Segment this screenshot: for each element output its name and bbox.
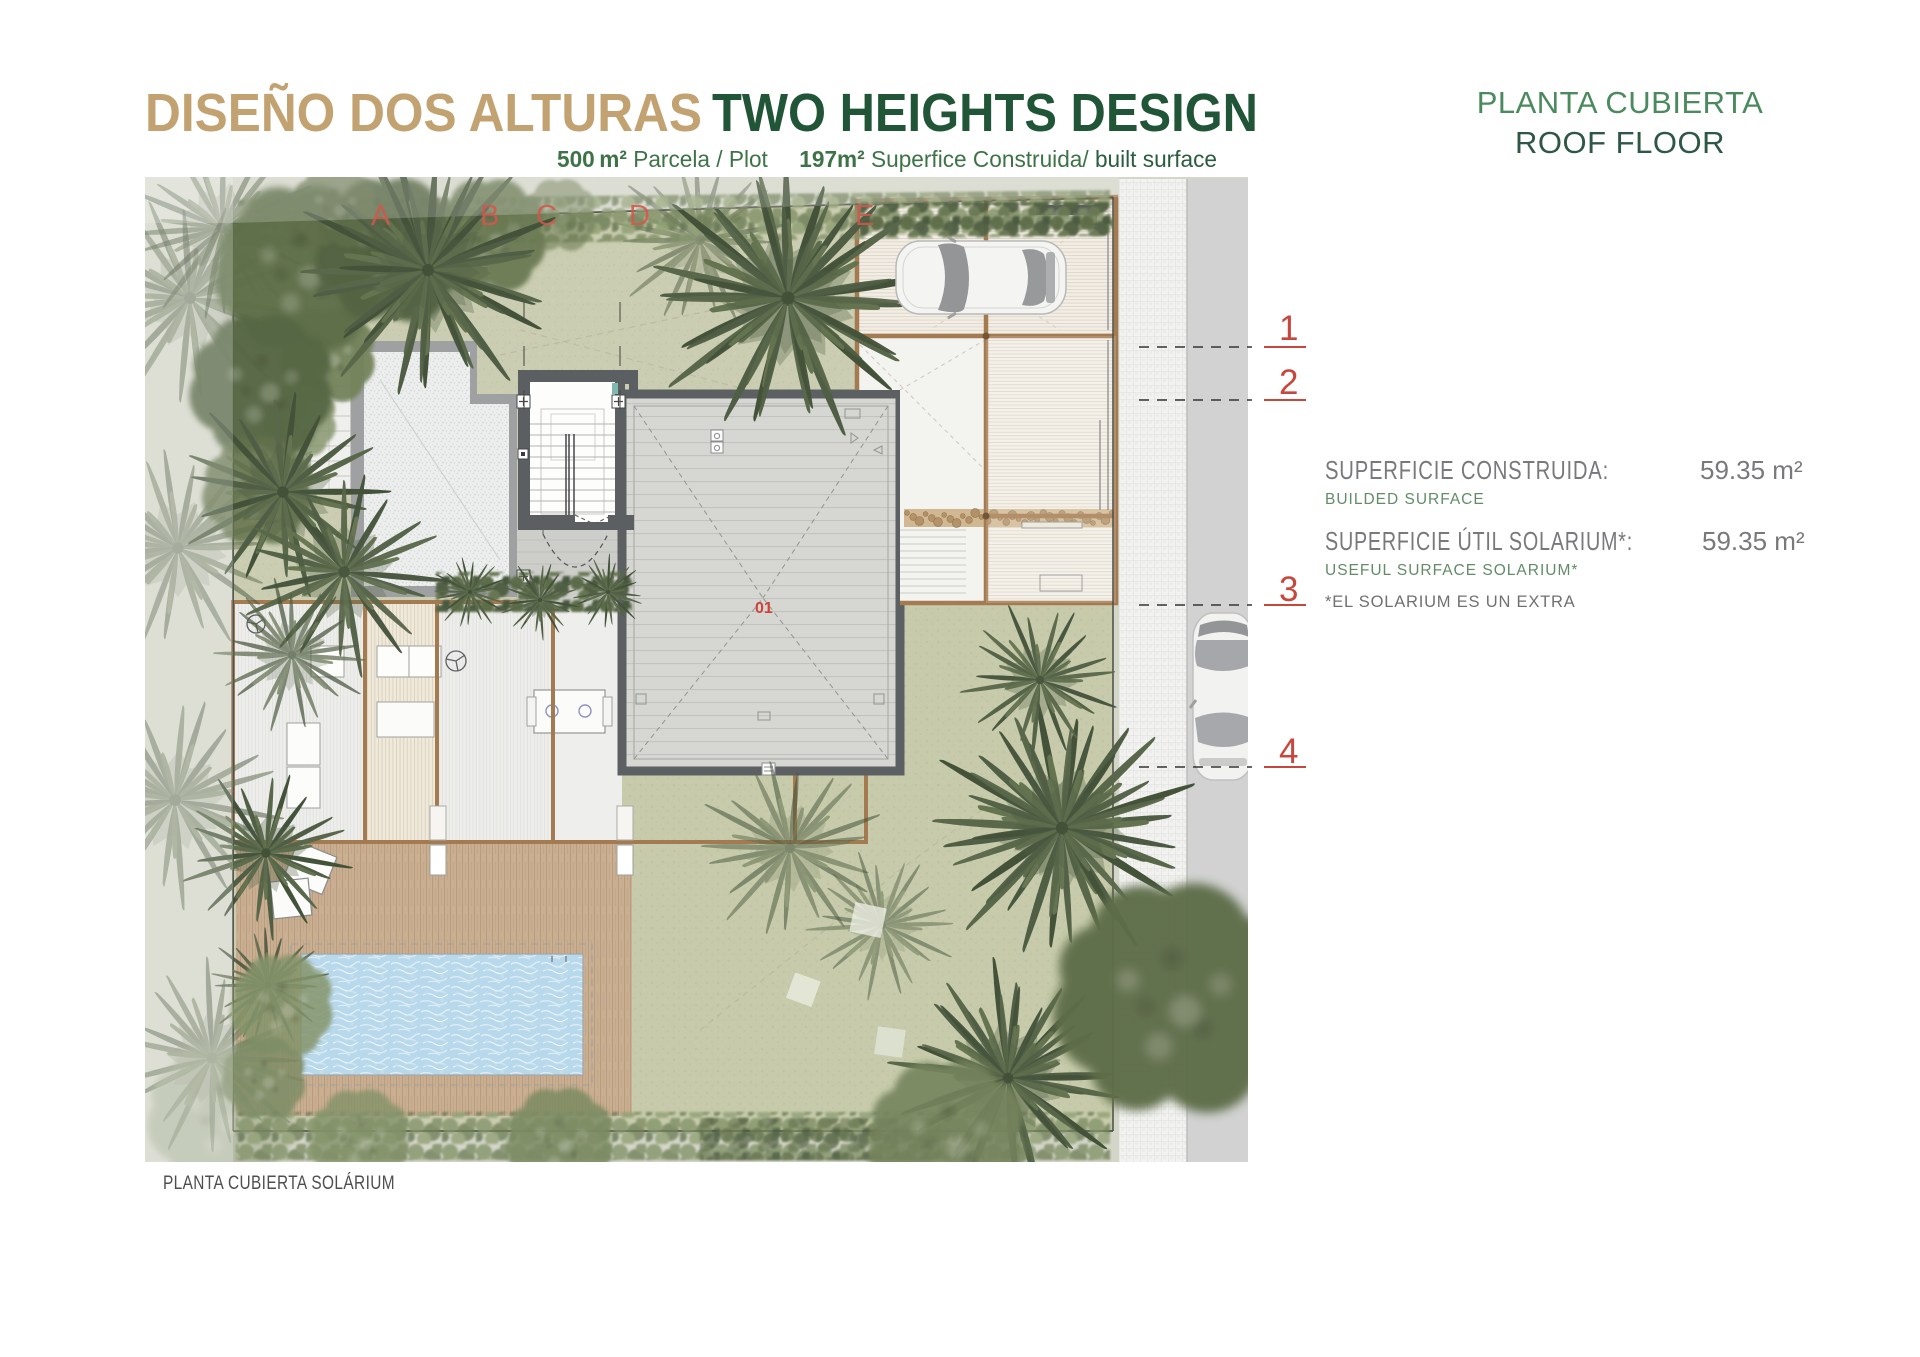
svg-text:500 m² Parcela / Plot 197m: 500 m² Parcela / Plot 197m² Superfice Co… <box>557 146 1217 172</box>
svg-text:D: D <box>629 200 650 232</box>
svg-text:59.35 m²: 59.35 m² <box>1702 526 1805 556</box>
svg-text:DISEÑO DOS ALTURAS: DISEÑO DOS ALTURAS <box>145 83 702 143</box>
svg-text:PLANTA CUBIERTA SOLÁRIUM: PLANTA CUBIERTA SOLÁRIUM <box>163 1171 395 1194</box>
svg-text:C: C <box>536 200 557 232</box>
svg-text:TWO HEIGHTS DESIGN: TWO HEIGHTS DESIGN <box>712 83 1258 143</box>
svg-text:*EL SOLARIUM ES UN EXTRA: *EL SOLARIUM ES UN EXTRA <box>1325 593 1576 611</box>
svg-text:4: 4 <box>1279 732 1298 771</box>
svg-text:A: A <box>371 200 391 232</box>
svg-text:SUPERFICIE ÚTIL SOLARIUM*:: SUPERFICIE ÚTIL SOLARIUM*: <box>1325 526 1633 556</box>
svg-text:3: 3 <box>1279 570 1298 609</box>
svg-text:ROOF FLOOR: ROOF FLOOR <box>1515 125 1725 160</box>
svg-text:PLANTA CUBIERTA: PLANTA CUBIERTA <box>1477 85 1764 120</box>
svg-text:2: 2 <box>1279 363 1298 402</box>
svg-text:BUILDED SURFACE: BUILDED SURFACE <box>1325 491 1485 508</box>
svg-text:E: E <box>855 200 874 232</box>
svg-text:B: B <box>480 200 499 232</box>
svg-text:USEFUL SURFACE SOLARIUM*: USEFUL SURFACE SOLARIUM* <box>1325 562 1578 579</box>
svg-text:59.35 m²: 59.35 m² <box>1700 455 1803 485</box>
svg-text:SUPERFICIE CONSTRUIDA:: SUPERFICIE CONSTRUIDA: <box>1325 455 1609 485</box>
svg-text:1: 1 <box>1279 309 1298 348</box>
